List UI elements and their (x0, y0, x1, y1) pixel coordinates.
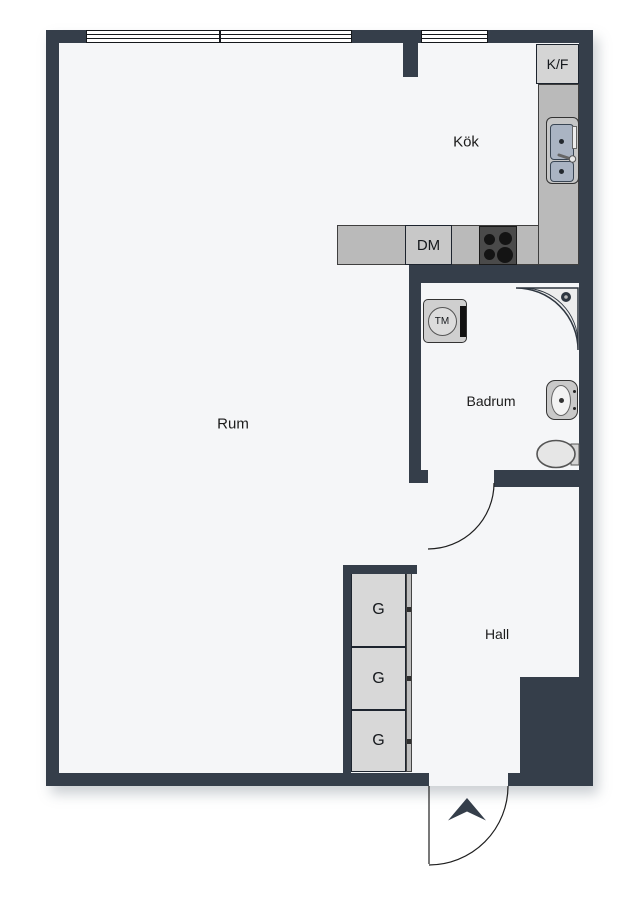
washing-machine: TM (423, 299, 467, 343)
window-mullion (219, 30, 221, 43)
faucet-dot-icon (573, 390, 576, 393)
window (421, 30, 488, 43)
wall-bathroom-left (409, 265, 421, 483)
wall-wardrobe-left (343, 565, 351, 773)
stove-burner-icon (499, 232, 512, 245)
washing-machine-label: TM (435, 316, 449, 327)
room-label-kok: Kök (453, 134, 479, 151)
washing-machine-door-icon (460, 306, 466, 337)
wardrobe-label: G (372, 732, 384, 750)
entrance-door (429, 786, 508, 865)
wall-window-stub (403, 30, 418, 77)
kitchen-sink (546, 117, 579, 184)
sink-basin-icon (550, 161, 574, 182)
wall-right (579, 30, 593, 786)
faucet-icon (572, 126, 577, 149)
stove-burner-icon (497, 247, 513, 263)
wardrobe: G (351, 647, 406, 710)
dishwasher-label: DM (417, 237, 440, 254)
wardrobe: G (351, 573, 406, 647)
faucet-dot-icon (573, 407, 576, 410)
stove (479, 226, 517, 265)
wall-bathroom-door-post (421, 470, 428, 483)
wardrobe: G (351, 710, 406, 772)
wardrobe-label: G (372, 670, 384, 688)
stove-burner-icon (484, 234, 495, 245)
entrance-arrow-icon (448, 798, 486, 821)
fridge-freezer: K/F (536, 44, 579, 84)
floor-plan: K/F DM TM G G (0, 0, 636, 900)
wall-left (46, 30, 59, 786)
fridge-freezer-label: K/F (547, 56, 569, 72)
window (86, 30, 352, 43)
wall-bathroom-top (409, 265, 579, 283)
stove-burner-icon (484, 249, 495, 260)
sink-basin-icon (550, 124, 574, 160)
bathroom-sink (546, 380, 578, 420)
wall-hall-block (520, 677, 593, 786)
room-label-rum: Rum (217, 416, 249, 433)
washing-machine-drum-icon: TM (428, 307, 457, 336)
wardrobe-label: G (372, 601, 384, 619)
wall-wardrobe-cap (343, 565, 417, 574)
wall-bathroom-bottom (494, 470, 593, 487)
room-label-hall: Hall (485, 626, 509, 642)
dishwasher: DM (405, 225, 452, 265)
wall-bottom-left (46, 773, 429, 786)
room-label-badrum: Badrum (466, 393, 515, 409)
